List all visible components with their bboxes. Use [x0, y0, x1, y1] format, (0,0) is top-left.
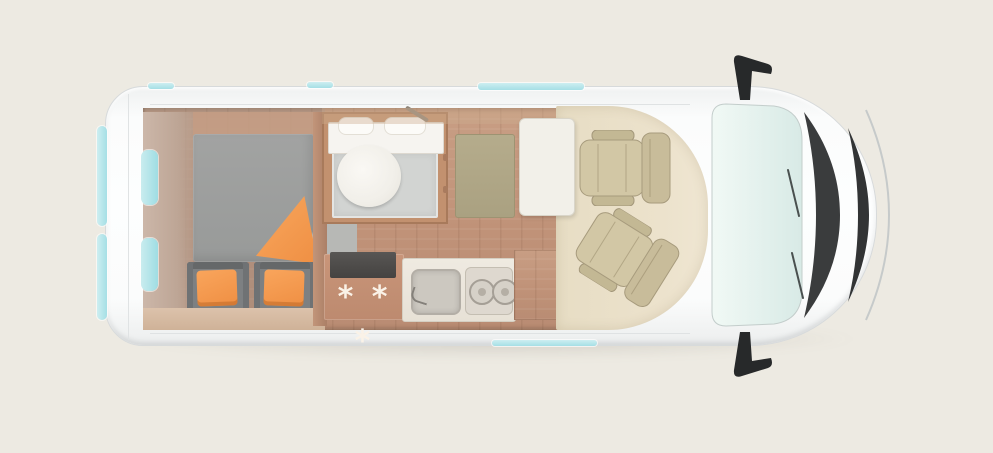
orange-pillow-right — [263, 269, 304, 306]
rear-window-pane-top — [141, 150, 158, 205]
campervan-floorplan: * * * — [0, 0, 993, 453]
kitchen-counter — [402, 258, 516, 322]
bedroom-floor-ledge — [143, 308, 325, 330]
skylight-strip-mid — [307, 82, 333, 88]
windshield — [712, 104, 802, 326]
passenger-swivel-seat — [576, 130, 680, 206]
seat-backrest — [642, 133, 670, 203]
nose-rim-line — [866, 110, 889, 320]
bathroom — [322, 112, 448, 224]
stove-hob — [465, 267, 513, 315]
hood-grille-band — [848, 128, 869, 302]
van-front-section — [700, 48, 890, 388]
rear-door-window-bottom — [97, 234, 107, 320]
rear-door-window-top — [97, 126, 107, 226]
side-bench-cushion — [455, 134, 515, 218]
skylight-strip-rear — [148, 83, 174, 89]
seat-armrest — [592, 130, 634, 141]
windshield-cowl-band — [804, 112, 840, 318]
bedroom-rear-wall — [143, 112, 193, 330]
freezer-stars-icon: * * * — [324, 276, 404, 320]
side-mirror-bottom — [734, 332, 772, 377]
bathroom-door-hinge-top — [443, 154, 448, 161]
roof-rear-seam-line — [150, 333, 690, 334]
toilet — [337, 145, 401, 207]
rear-window-pane-bottom — [141, 238, 158, 291]
roof-front-seam-line — [150, 104, 690, 105]
orange-pillow-left — [196, 269, 237, 306]
sliding-door-window-strip — [492, 340, 597, 346]
side-mirror-top — [734, 55, 772, 100]
bathroom-door-hinge-bottom — [443, 186, 448, 193]
skylight-strip-front — [478, 83, 584, 90]
rear-door-seam-line — [128, 94, 129, 340]
dining-table — [519, 118, 575, 216]
seat-cushion — [580, 140, 644, 196]
fridge-top-surface — [330, 252, 396, 278]
